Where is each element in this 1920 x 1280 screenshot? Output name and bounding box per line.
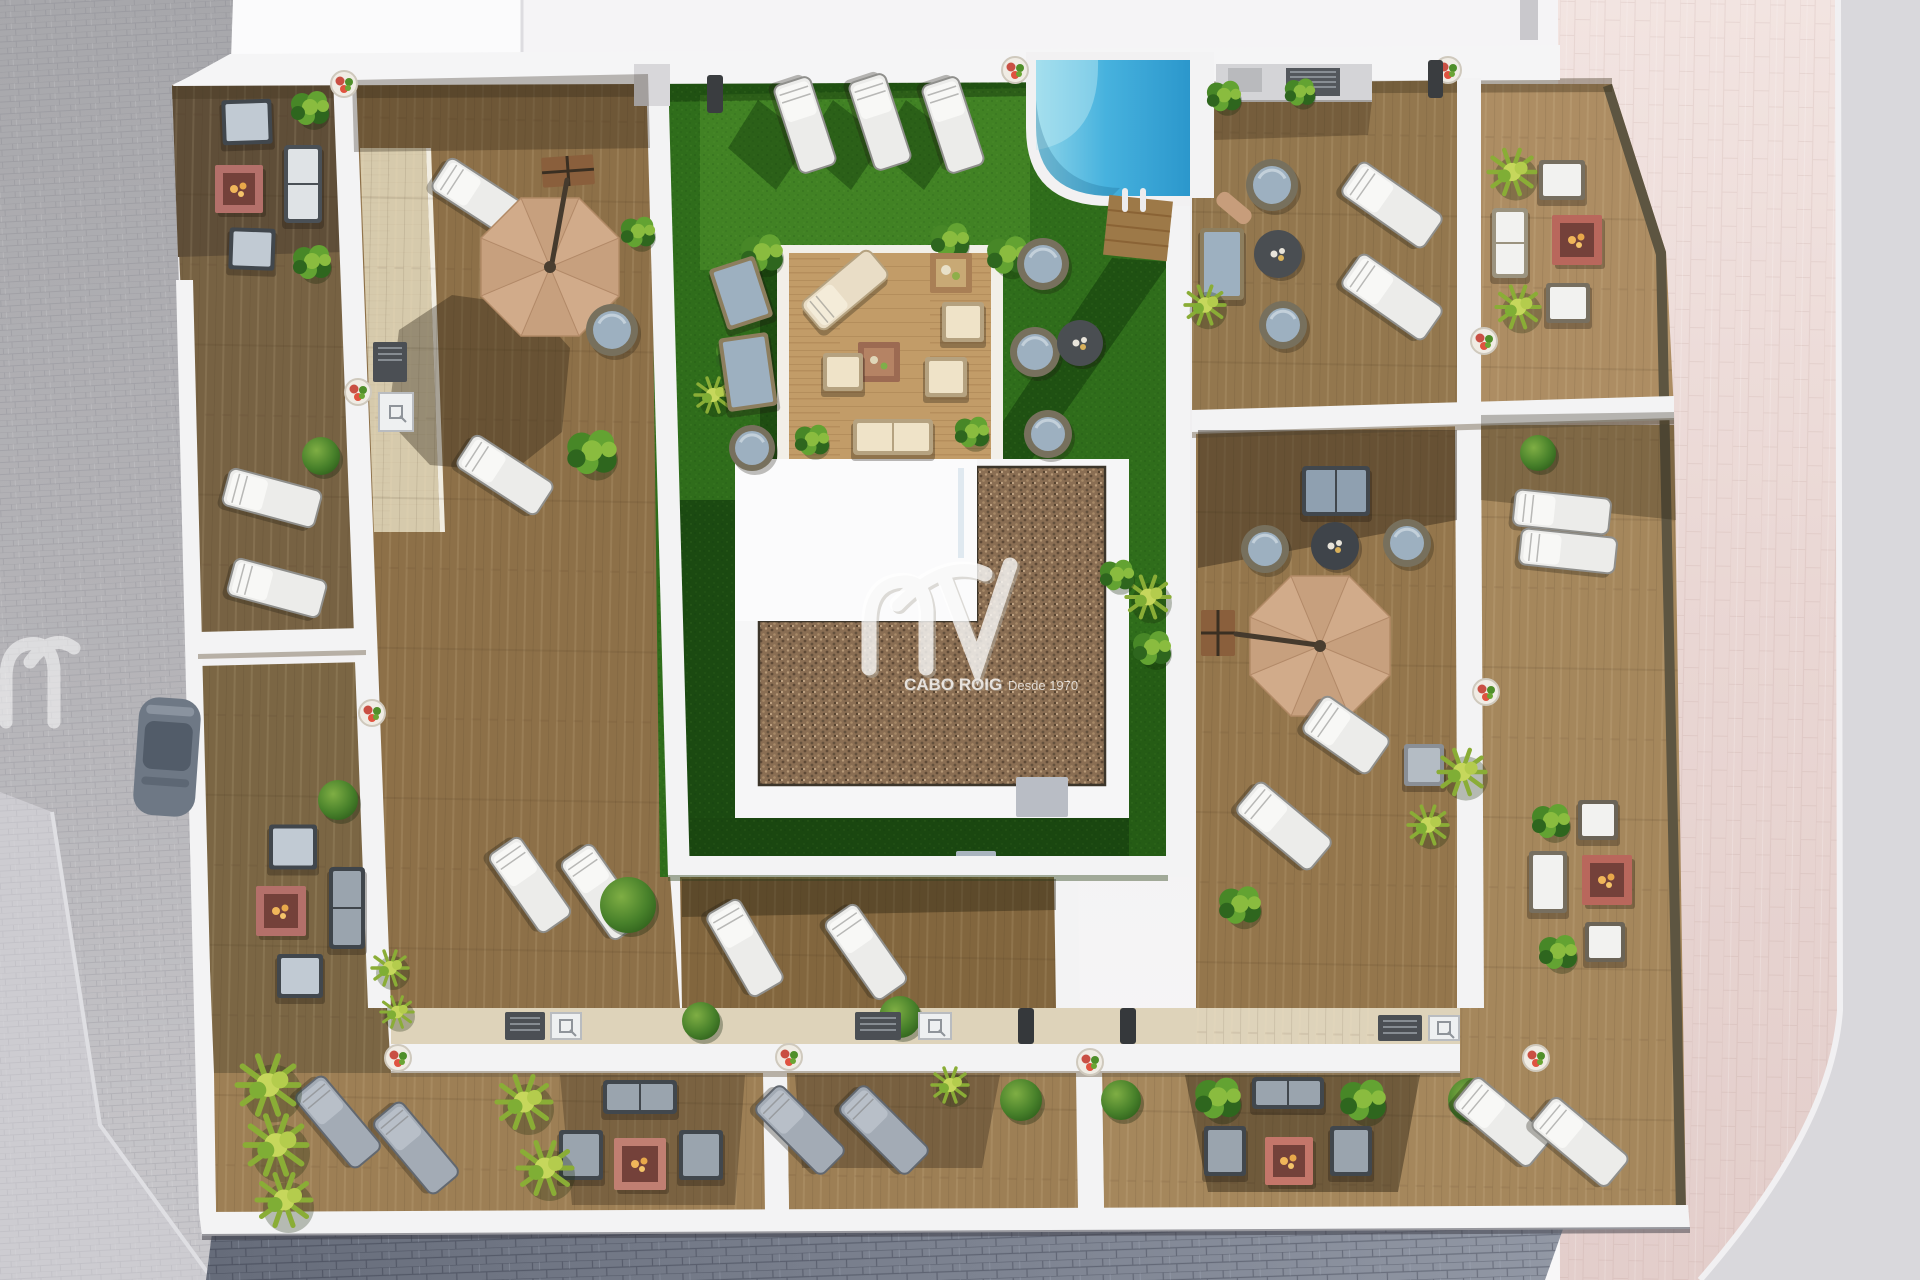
svg-text:CABO ROIG: CABO ROIG [904, 675, 1002, 694]
svg-text:Desde 1970: Desde 1970 [1008, 678, 1078, 693]
